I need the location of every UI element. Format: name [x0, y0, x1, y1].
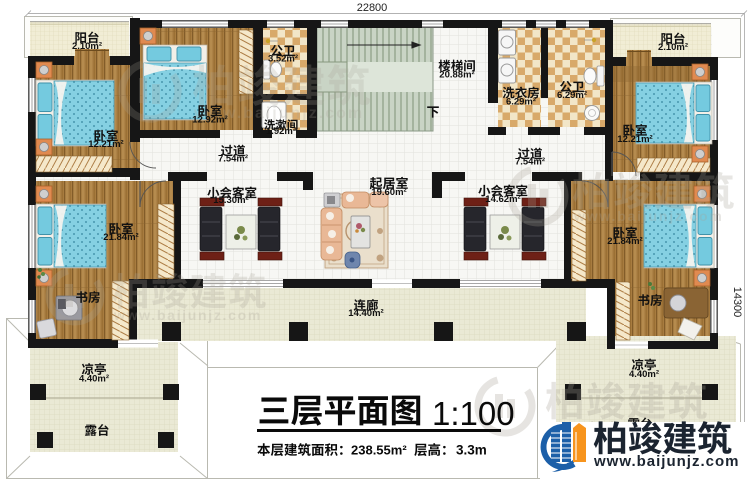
svg-text:4.40m²: 4.40m² [79, 374, 109, 385]
svg-text:12.21m²: 12.21m² [88, 139, 123, 150]
svg-text:14.62m²: 14.62m² [485, 194, 520, 205]
svg-text:19.60m²: 19.60m² [371, 187, 406, 198]
svg-text:15.30m²: 15.30m² [213, 195, 248, 206]
svg-text:21.84m²: 21.84m² [103, 232, 138, 243]
svg-text:12.92m²: 12.92m² [192, 115, 227, 126]
svg-text:2.10m²: 2.10m² [658, 42, 688, 53]
svg-text:12.21m²: 12.21m² [617, 134, 652, 145]
svg-text:www.baijunjz.com: www.baijunjz.com [113, 307, 262, 323]
svg-text:238.55m²: 238.55m² [351, 443, 407, 458]
svg-text:21.84m²: 21.84m² [607, 236, 642, 247]
svg-text:14.40m²: 14.40m² [348, 308, 383, 319]
svg-text:www.baijunjz.com: www.baijunjz.com [573, 208, 724, 224]
svg-text:3.3m: 3.3m [456, 443, 487, 458]
svg-text:6.29m²: 6.29m² [557, 90, 587, 101]
svg-text:www.baijunjz.com: www.baijunjz.com [593, 453, 739, 470]
svg-text:6.29m²: 6.29m² [506, 97, 536, 108]
svg-text:1:100: 1:100 [432, 395, 515, 432]
svg-text:14300: 14300 [731, 287, 743, 318]
svg-text:3.52m²: 3.52m² [268, 54, 298, 65]
svg-text:7.54m²: 7.54m² [218, 154, 248, 165]
svg-text:2.10m²: 2.10m² [72, 41, 102, 52]
svg-text:20.88m²: 20.88m² [439, 70, 474, 81]
svg-text:7.54m²: 7.54m² [515, 157, 545, 168]
svg-text:1.92m²: 1.92m² [266, 126, 296, 137]
svg-text:22800: 22800 [357, 2, 388, 14]
svg-text:4.40m²: 4.40m² [629, 369, 659, 380]
